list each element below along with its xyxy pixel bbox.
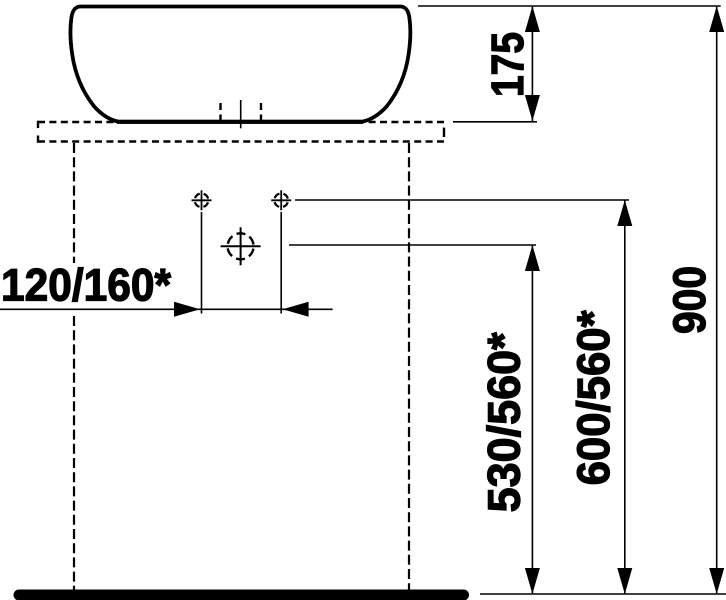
svg-text:900: 900 <box>664 266 715 334</box>
svg-text:530/560*: 530/560* <box>479 332 530 512</box>
svg-text:600/560*: 600/560* <box>568 310 619 485</box>
svg-text:120/160*: 120/160* <box>1 260 171 311</box>
svg-text:175: 175 <box>482 32 533 97</box>
